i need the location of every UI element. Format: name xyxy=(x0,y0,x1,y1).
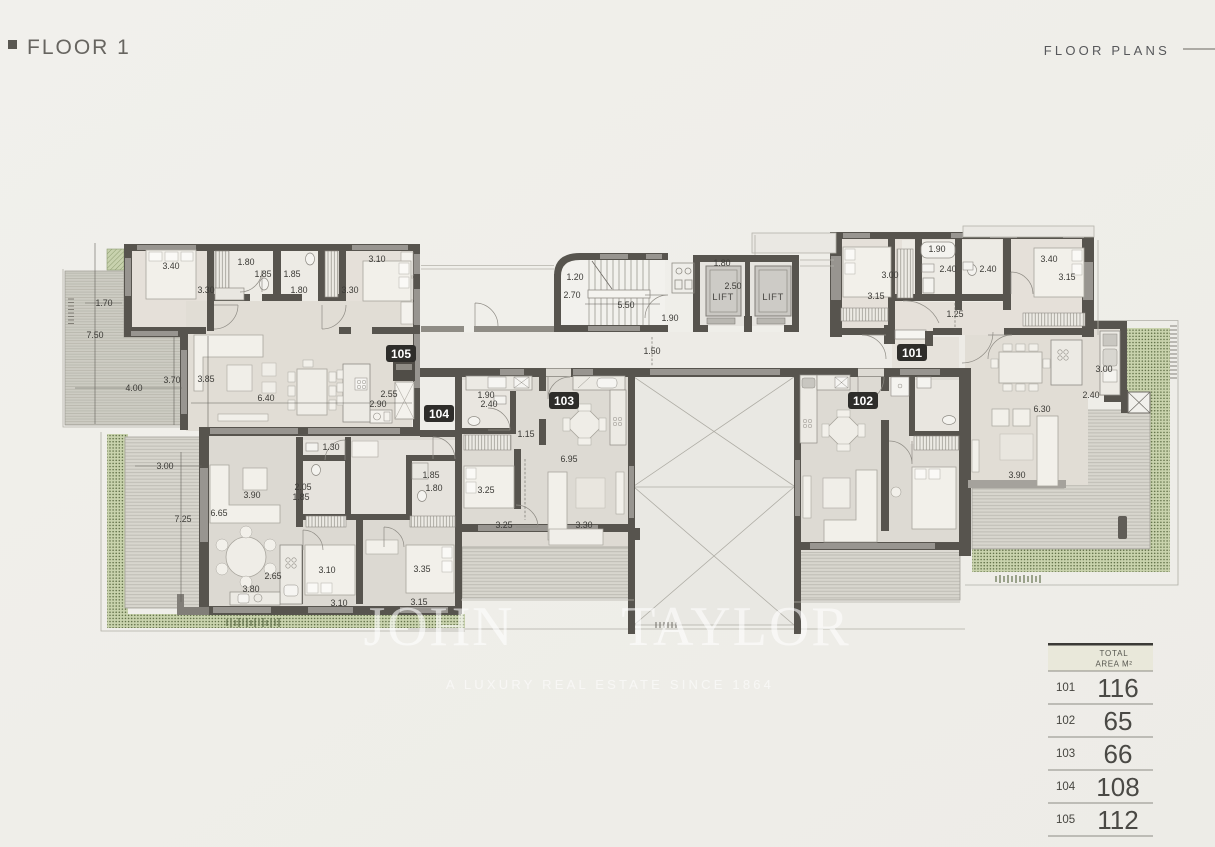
svg-text:FLOOR 1: FLOOR 1 xyxy=(27,36,131,59)
svg-text:2.55: 2.55 xyxy=(380,389,397,399)
svg-text:108: 108 xyxy=(1096,772,1139,802)
svg-text:3.30: 3.30 xyxy=(341,285,358,295)
svg-text:LIFT: LIFT xyxy=(762,292,784,303)
svg-text:3.25: 3.25 xyxy=(495,520,512,530)
svg-text:3.30: 3.30 xyxy=(575,520,592,530)
svg-text:2.90: 2.90 xyxy=(369,399,386,409)
svg-text:2.40: 2.40 xyxy=(979,264,996,274)
svg-text:2.40: 2.40 xyxy=(939,264,956,274)
svg-text:2.50: 2.50 xyxy=(724,281,741,291)
svg-text:1.85: 1.85 xyxy=(283,269,300,279)
svg-text:TOTAL: TOTAL xyxy=(1099,649,1128,658)
svg-text:A LUXURY REAL ESTATE SINCE 186: A LUXURY REAL ESTATE SINCE 1864 xyxy=(446,677,774,692)
svg-text:101: 101 xyxy=(1056,682,1075,694)
svg-text:1.30: 1.30 xyxy=(322,442,339,452)
svg-text:1.25: 1.25 xyxy=(946,309,963,319)
svg-text:7.25: 7.25 xyxy=(174,514,191,524)
svg-text:TAYLOR: TAYLOR xyxy=(621,596,850,658)
svg-text:1.80: 1.80 xyxy=(713,258,730,268)
svg-text:1.85: 1.85 xyxy=(254,269,271,279)
svg-text:1.80: 1.80 xyxy=(237,257,254,267)
svg-text:1.90: 1.90 xyxy=(928,244,945,254)
svg-text:1.90: 1.90 xyxy=(661,313,678,323)
svg-text:3.10: 3.10 xyxy=(368,254,385,264)
svg-text:3.10: 3.10 xyxy=(330,598,347,608)
svg-text:1.15: 1.15 xyxy=(517,429,534,439)
svg-text:FLOOR PLANS: FLOOR PLANS xyxy=(1044,43,1170,58)
svg-text:1.85: 1.85 xyxy=(292,492,309,502)
svg-text:65: 65 xyxy=(1104,706,1133,736)
svg-text:116: 116 xyxy=(1097,673,1138,703)
svg-text:1.20: 1.20 xyxy=(566,272,583,282)
svg-text:2.40: 2.40 xyxy=(480,399,497,409)
svg-text:1.70: 1.70 xyxy=(95,298,112,308)
svg-text:AREA M²: AREA M² xyxy=(1095,660,1132,669)
svg-text:3.10: 3.10 xyxy=(318,565,335,575)
svg-text:105: 105 xyxy=(391,347,411,361)
svg-text:3.00: 3.00 xyxy=(156,461,173,471)
svg-text:104: 104 xyxy=(429,407,449,421)
svg-text:104: 104 xyxy=(1056,781,1076,793)
svg-text:4.00: 4.00 xyxy=(125,383,142,393)
svg-text:112: 112 xyxy=(1097,805,1138,835)
svg-text:3.35: 3.35 xyxy=(413,564,430,574)
svg-text:1.80: 1.80 xyxy=(290,285,307,295)
svg-text:6.30: 6.30 xyxy=(1033,404,1050,414)
svg-text:3.25: 3.25 xyxy=(477,485,494,495)
svg-text:3.30: 3.30 xyxy=(197,285,214,295)
svg-text:105: 105 xyxy=(1056,814,1075,826)
svg-text:2.70: 2.70 xyxy=(563,290,580,300)
svg-text:103: 103 xyxy=(554,394,574,408)
svg-text:3.90: 3.90 xyxy=(243,490,260,500)
svg-text:2.05: 2.05 xyxy=(294,482,311,492)
svg-text:3.70: 3.70 xyxy=(163,375,180,385)
svg-text:3.15: 3.15 xyxy=(1058,272,1075,282)
svg-text:3.00: 3.00 xyxy=(1095,364,1112,374)
svg-text:66: 66 xyxy=(1104,739,1133,769)
svg-text:6.40: 6.40 xyxy=(257,393,274,403)
svg-text:2.65: 2.65 xyxy=(264,571,281,581)
svg-text:2.40: 2.40 xyxy=(1082,390,1099,400)
svg-text:101: 101 xyxy=(902,346,922,360)
svg-text:3.00: 3.00 xyxy=(881,270,898,280)
svg-text:6.95: 6.95 xyxy=(560,454,577,464)
svg-text:JOHN: JOHN xyxy=(363,596,514,658)
svg-text:103: 103 xyxy=(1056,748,1075,760)
svg-text:3.80: 3.80 xyxy=(242,584,259,594)
svg-text:3.85: 3.85 xyxy=(197,374,214,384)
svg-text:5.50: 5.50 xyxy=(617,300,634,310)
svg-text:7.50: 7.50 xyxy=(86,330,103,340)
svg-text:3.15: 3.15 xyxy=(867,291,884,301)
svg-text:1.80: 1.80 xyxy=(425,483,442,493)
svg-text:LIFT: LIFT xyxy=(712,292,734,303)
svg-text:1.50: 1.50 xyxy=(643,346,660,356)
svg-text:3.40: 3.40 xyxy=(1040,254,1057,264)
svg-text:1.85: 1.85 xyxy=(422,470,439,480)
svg-text:102: 102 xyxy=(853,394,873,408)
svg-text:6.65: 6.65 xyxy=(210,508,227,518)
svg-text:3.90: 3.90 xyxy=(1008,470,1025,480)
svg-text:3.40: 3.40 xyxy=(162,261,179,271)
svg-text:102: 102 xyxy=(1056,715,1075,727)
